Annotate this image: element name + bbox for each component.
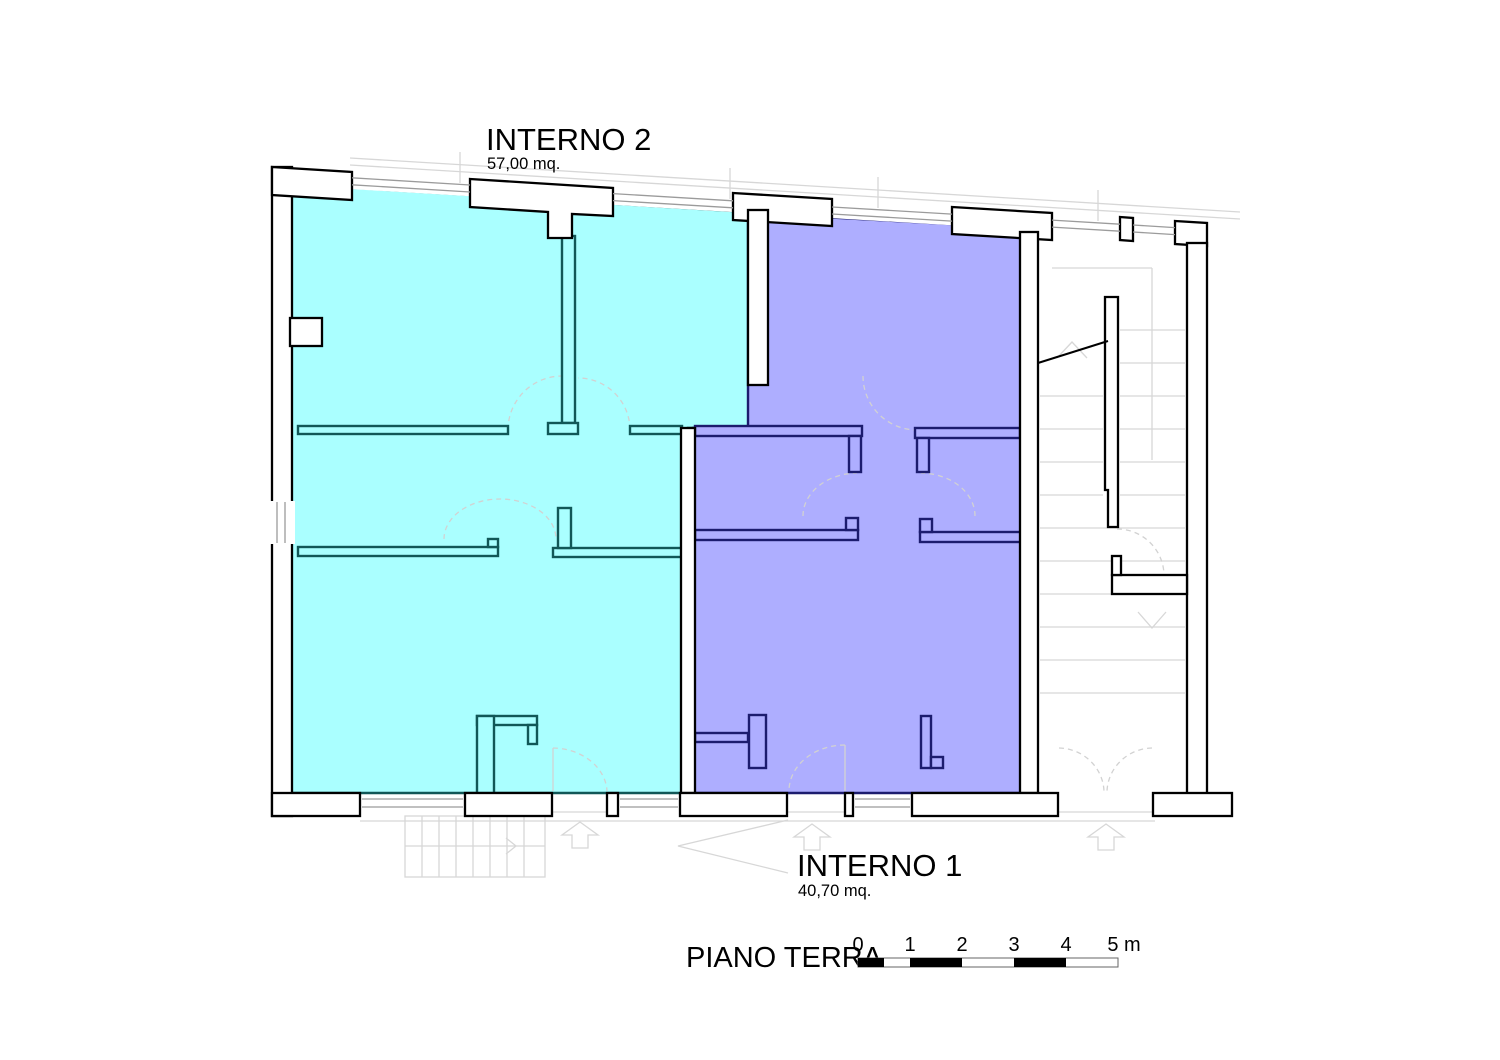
bottom-pillar bbox=[607, 793, 618, 816]
bottom-corner-foot bbox=[272, 793, 360, 816]
wall bbox=[553, 548, 688, 557]
scale-end-label: 5 m bbox=[1107, 934, 1140, 956]
right-wall bbox=[1187, 243, 1207, 795]
bottom-pier bbox=[680, 793, 787, 816]
wall bbox=[298, 547, 498, 556]
wall bbox=[921, 716, 931, 768]
stair-down-chevron bbox=[1138, 612, 1166, 628]
stairwell-elements bbox=[1038, 297, 1187, 594]
scale-bar-segment bbox=[858, 958, 884, 967]
wall bbox=[749, 715, 766, 768]
party-wall-lower bbox=[681, 428, 695, 793]
wall bbox=[488, 539, 498, 547]
party-wall-upper bbox=[748, 210, 768, 385]
scale-tick-label: 2 bbox=[956, 934, 967, 956]
wall bbox=[528, 725, 537, 744]
stair-hall-wall bbox=[1112, 575, 1187, 594]
scale-bar-segment bbox=[910, 958, 962, 967]
wall bbox=[298, 426, 508, 434]
wall bbox=[920, 519, 932, 532]
entrance-arrow bbox=[794, 824, 830, 850]
wall bbox=[548, 423, 578, 434]
interno2-area: 57,00 mq. bbox=[487, 155, 560, 173]
bottom-corner-foot bbox=[1153, 793, 1232, 816]
floor-plan-page: INTERNO 2 57,00 mq. INTERNO 1 40,70 mq. … bbox=[0, 0, 1500, 1060]
left-wall bbox=[272, 167, 292, 816]
scale-bar-outline bbox=[858, 958, 1118, 967]
stair-cut-line bbox=[1038, 341, 1108, 363]
wall bbox=[849, 436, 861, 472]
interno1-title: INTERNO 1 bbox=[797, 848, 962, 883]
top-pillar bbox=[1120, 217, 1133, 241]
scale-tick-label: 4 bbox=[1060, 934, 1071, 956]
left-wall-notch bbox=[290, 318, 322, 346]
door-arc bbox=[1107, 748, 1152, 791]
door-arc bbox=[1059, 748, 1104, 791]
left-window-recess bbox=[269, 501, 295, 544]
door-arc bbox=[1117, 529, 1164, 574]
scale-bar: 0 1 2 3 4 5 m bbox=[852, 934, 1140, 967]
wall bbox=[695, 426, 862, 436]
stairwell-party-wall bbox=[1020, 232, 1038, 793]
wall bbox=[630, 426, 682, 434]
floor-plan-drawing: INTERNO 2 57,00 mq. INTERNO 1 40,70 mq. … bbox=[0, 0, 1500, 1060]
scale-tick-label: 0 bbox=[852, 934, 863, 956]
stair-hall-wall-stub bbox=[1112, 556, 1121, 575]
wall bbox=[477, 716, 494, 793]
wall bbox=[695, 530, 858, 540]
interno2-title: INTERNO 2 bbox=[486, 122, 651, 157]
bottom-pier bbox=[912, 793, 1058, 816]
wall bbox=[846, 518, 858, 530]
top-pier bbox=[272, 167, 352, 200]
bottom-pillar bbox=[845, 793, 853, 816]
wall bbox=[562, 236, 575, 423]
scale-tick-label: 3 bbox=[1008, 934, 1019, 956]
label-pointer-triangle bbox=[678, 820, 788, 873]
wall bbox=[915, 428, 1020, 438]
interno1-area: 40,70 mq. bbox=[798, 882, 871, 900]
entrance-arrow bbox=[562, 822, 598, 848]
wall bbox=[931, 757, 943, 768]
bottom-pier bbox=[465, 793, 552, 816]
wall bbox=[917, 438, 929, 472]
wall bbox=[695, 733, 748, 742]
scale-tick-label: 1 bbox=[904, 934, 915, 956]
wall bbox=[920, 532, 1022, 542]
stair-divider-wall bbox=[1105, 297, 1118, 527]
wall bbox=[558, 508, 571, 548]
entrance-arrow bbox=[1088, 824, 1124, 850]
scale-bar-segment bbox=[1014, 958, 1066, 967]
